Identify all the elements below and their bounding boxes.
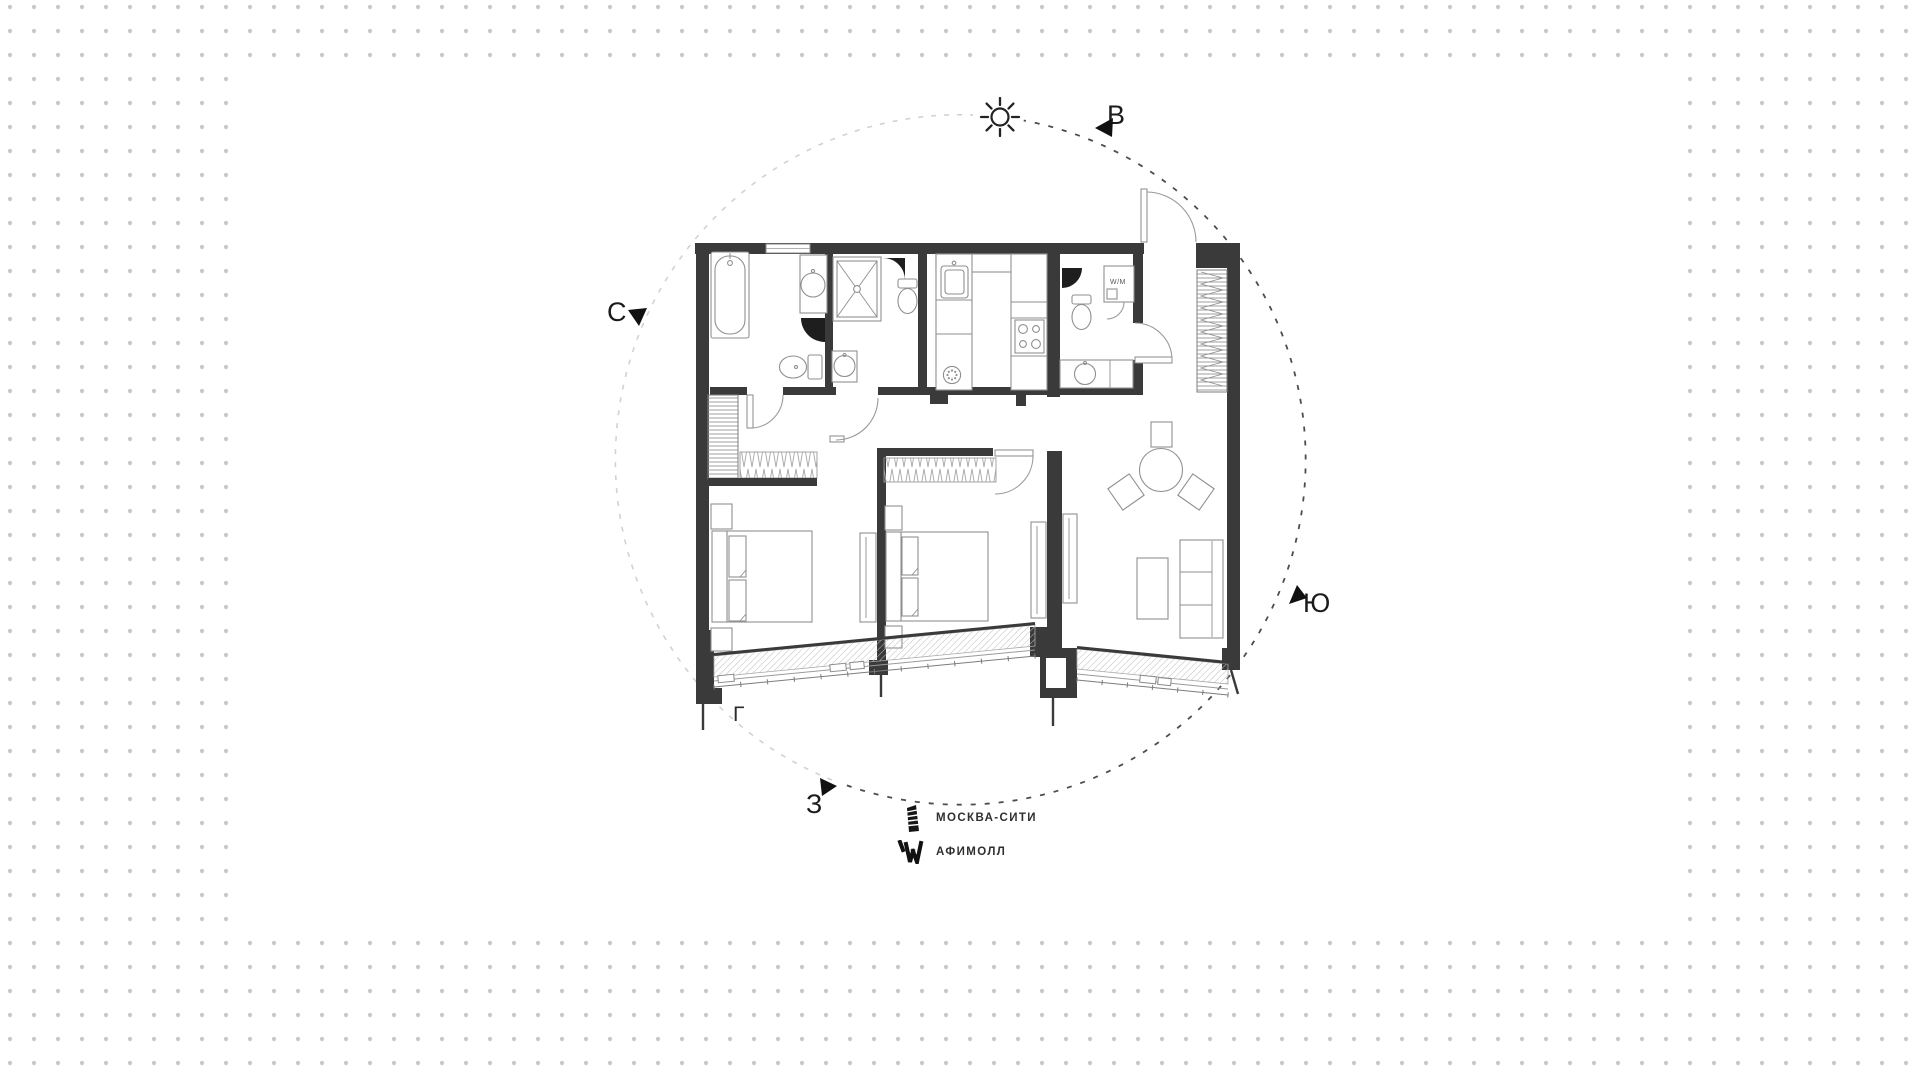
sun-icon <box>981 98 1019 136</box>
legend-label: МОСКВА-СИТИ <box>936 812 1037 824</box>
chair-icon <box>1178 474 1214 510</box>
landmark-legend: МОСКВА-СИТИ АФИМОЛЛ <box>896 804 1037 866</box>
tv-console-1-icon <box>860 533 876 622</box>
skyscraper-icon <box>896 804 926 832</box>
bathroom-shower <box>832 257 917 382</box>
compass-west-arrow-icon <box>820 778 837 796</box>
guest-wc: W/M <box>1060 266 1134 388</box>
balcony-band-living <box>1077 648 1229 698</box>
toilet-2-icon <box>898 279 917 314</box>
shower-screen-fan-icon <box>801 318 825 342</box>
door-bedroom-1 <box>747 395 783 428</box>
bathtub-icon <box>711 252 749 338</box>
compass-north-label: С <box>607 297 627 327</box>
kitchen <box>936 254 1047 390</box>
afimall-icon <box>896 840 926 864</box>
living-room <box>1063 422 1223 638</box>
door-guest-wc <box>1135 323 1172 363</box>
sofa-icon <box>1180 540 1223 638</box>
washing-machine-label: W/M <box>1110 279 1126 286</box>
entrance-door <box>1141 189 1196 242</box>
clothes-rack-1-icon <box>740 452 817 478</box>
dining-table-icon <box>1140 449 1183 492</box>
wardrobe-1-icon <box>708 395 738 479</box>
compass-south-label: Ю <box>1303 588 1330 618</box>
door-shower-room <box>830 398 878 442</box>
coffee-table-icon <box>1137 558 1168 619</box>
wc-sink-icon <box>1060 360 1133 388</box>
door-fan-icon <box>1062 268 1082 288</box>
washing-machine-icon: W/M <box>1104 266 1134 319</box>
chair-icon <box>1108 474 1144 510</box>
compass-east-arrow-icon <box>1095 118 1113 137</box>
bedroom-1 <box>708 395 876 651</box>
sink-2-icon <box>832 351 857 382</box>
legend-item-afimall: АФИМОЛЛ <box>896 838 1037 866</box>
balcony-band-bedrooms <box>714 624 1035 690</box>
legend-label: АФИМОЛЛ <box>936 846 1006 858</box>
legend-item-moscow-city: МОСКВА-СИТИ <box>896 804 1037 832</box>
page: В С Ю З <box>0 0 1920 1078</box>
kitchen-counter-right <box>1011 254 1047 390</box>
bathroom-master <box>711 252 827 379</box>
tv-console-living-icon <box>1063 514 1077 603</box>
floor-plan-scene: В С Ю З <box>0 0 1920 1078</box>
floor-plan: W/M <box>695 189 1240 730</box>
door-bedroom-2 <box>995 450 1033 494</box>
bed-1-icon <box>711 504 812 651</box>
cabinet-icon <box>1151 422 1172 447</box>
bedroom-2 <box>884 458 1046 648</box>
hall-closet <box>1197 270 1227 392</box>
corner-mark-label: Г <box>733 703 744 726</box>
toilet-1-icon <box>780 355 823 379</box>
toilet-3-icon <box>1072 295 1091 330</box>
tv-console-2-icon <box>1031 522 1046 618</box>
compass-west-label: З <box>806 789 822 819</box>
bed-2-icon <box>885 506 988 648</box>
door-fan-icon <box>883 258 905 280</box>
vanity-sink-icon <box>800 255 827 313</box>
clothes-rack-2-icon <box>884 458 996 482</box>
shower-icon <box>833 257 881 321</box>
